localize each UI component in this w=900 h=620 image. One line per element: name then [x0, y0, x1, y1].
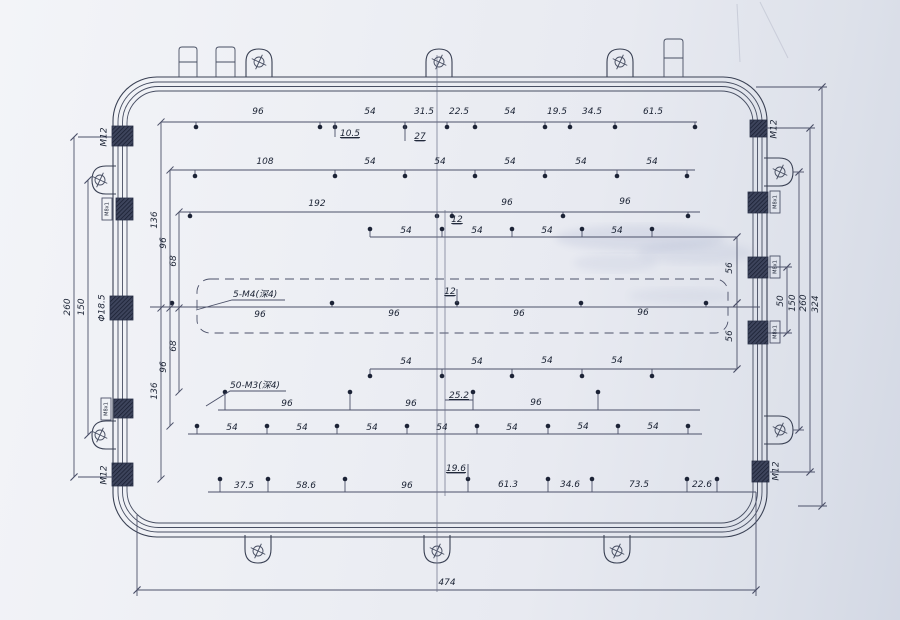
hole-dot	[686, 424, 691, 429]
dim-label: 50	[776, 295, 786, 307]
dim-label: 54	[541, 226, 553, 236]
dim-label: 96	[401, 481, 413, 491]
dim-label: 54	[541, 356, 553, 366]
hole-dot	[616, 424, 621, 429]
dim-label: 56	[725, 262, 735, 274]
dim-label: 96	[405, 399, 417, 409]
hole-dot	[403, 174, 408, 179]
dim-label: 12	[451, 215, 463, 225]
dim-label: 34.6	[560, 480, 580, 490]
dim-label: 54	[296, 423, 308, 433]
hole-dot	[685, 477, 690, 482]
cable-gland-hatch	[750, 120, 767, 137]
hole-dot	[615, 174, 620, 179]
hole-dot	[473, 125, 478, 130]
hole-dot	[579, 301, 584, 306]
dim-label: 136	[150, 382, 160, 399]
dim-label: 56	[725, 330, 735, 342]
gland-label: M8x1	[773, 325, 779, 339]
hole-dot	[445, 125, 450, 130]
hole-dot	[613, 125, 618, 130]
gland-label: M12	[770, 119, 780, 138]
dim-label: 68	[169, 340, 179, 352]
cable-gland-hatch	[748, 257, 768, 278]
dim-label: 12	[444, 287, 456, 297]
hole-dot	[471, 390, 476, 395]
dim-label: 96	[530, 398, 542, 408]
dim-label: 474	[438, 578, 455, 588]
dim-label: 54	[364, 107, 376, 117]
dim-label: 96	[619, 197, 631, 207]
hidden-recess-outline	[197, 279, 728, 333]
dim-label: 54	[575, 157, 587, 167]
hole-dot	[333, 174, 338, 179]
hole-dot	[510, 374, 515, 379]
label-layer: M12M8x1Φ18.5M8x1M12M12M8x1M8x1M8x1M12965…	[63, 107, 821, 588]
hole-dot	[440, 374, 445, 379]
cable-gland-hatch	[110, 296, 133, 320]
dim-label: 96	[159, 361, 169, 373]
gland-label: M8x1	[773, 260, 779, 274]
dim-label: 31.5	[414, 107, 434, 117]
hole-dot	[368, 227, 373, 232]
cable-gland-hatch	[112, 463, 133, 486]
dim-label: 19.6	[446, 464, 466, 474]
hole-dot	[704, 301, 709, 306]
gland-label: M12	[772, 461, 782, 480]
dim-label: 324	[811, 295, 821, 312]
dim-label: 54	[471, 357, 483, 367]
dim-label: 136	[150, 211, 160, 228]
dim-label: 260	[63, 298, 73, 315]
dim-label: 54	[400, 357, 412, 367]
mounting-lug	[92, 421, 116, 449]
dim-label: 54	[611, 226, 623, 236]
mounting-lug	[764, 158, 793, 186]
dim-label: 54	[504, 107, 516, 117]
cable-gland-hatch	[748, 192, 768, 213]
dim-label: 58.6	[296, 481, 316, 491]
hole-dot	[348, 390, 353, 395]
dim-label: 54	[504, 157, 516, 167]
cable-gland-hatch	[748, 321, 768, 344]
mounting-lug	[92, 166, 116, 194]
hole-dot	[475, 424, 480, 429]
dim-label: 25.2	[449, 391, 469, 401]
hole-dot	[188, 214, 193, 219]
hole-dot	[561, 214, 566, 219]
dim-label: 54	[364, 157, 376, 167]
gland-label: Φ18.5	[98, 294, 108, 321]
hole-dot	[568, 125, 573, 130]
dim-label: 37.5	[234, 481, 254, 491]
hole-dot	[686, 214, 691, 219]
hole-dot	[650, 374, 655, 379]
hole-dot	[193, 174, 198, 179]
gland-label: M8x1	[104, 402, 110, 416]
hole-dot	[265, 424, 270, 429]
dim-label: 19.5	[547, 107, 567, 117]
dim-label: 73.5	[629, 480, 649, 490]
dim-label: 61.5	[643, 107, 663, 117]
hole-dot	[590, 477, 595, 482]
dim-label: 10.5	[340, 129, 360, 139]
dim-label: 22.5	[449, 107, 469, 117]
hole-dot	[335, 424, 340, 429]
dim-label: 27	[414, 132, 426, 142]
hole-dot	[685, 174, 690, 179]
ghost-smudge	[628, 288, 732, 304]
hole-dot	[218, 477, 223, 482]
callout-label: 50-M3(深4)	[230, 380, 280, 391]
hole-dot	[266, 477, 271, 482]
cable-gland-hatch	[112, 126, 133, 146]
hole-dot	[650, 227, 655, 232]
hole-dot	[194, 125, 199, 130]
hole-dot	[546, 477, 551, 482]
dim-label: 108	[256, 157, 273, 167]
dim-label: 54	[506, 423, 518, 433]
hole-dot	[543, 125, 548, 130]
callout-label: 5-M4(深4)	[233, 289, 277, 300]
cable-gland-hatch	[114, 399, 133, 418]
callout-leader	[196, 300, 285, 310]
dim-label: 260	[799, 294, 809, 311]
dim-label: 150	[788, 294, 798, 311]
hole-dot	[330, 301, 335, 306]
hole-dot	[405, 424, 410, 429]
dimension-layer	[71, 55, 828, 596]
cable-gland-hatch	[116, 198, 133, 220]
dim-label: 34.5	[582, 107, 602, 117]
dim-label: 54	[471, 226, 483, 236]
drawing-sheet: M12M8x1Φ18.5M8x1M12M12M8x1M8x1M8x1M12965…	[0, 0, 900, 620]
paper-crease	[760, 2, 788, 58]
gland-label: M8x1	[105, 202, 111, 216]
hole-dot	[715, 477, 720, 482]
dim-label: 96	[159, 237, 169, 249]
hole-dot	[440, 227, 445, 232]
dim-label: 150	[77, 298, 87, 315]
gland-label: M8x1	[773, 195, 779, 209]
dim-label: 54	[400, 226, 412, 236]
dim-label: 54	[436, 423, 448, 433]
hole-dot	[596, 390, 601, 395]
dim-label: 96	[388, 309, 400, 319]
hole-dot	[368, 374, 373, 379]
hole-dot	[473, 174, 478, 179]
callout-leader	[206, 391, 286, 406]
dim-label: 54	[366, 423, 378, 433]
hole-dot	[580, 227, 585, 232]
hole-dot	[343, 477, 348, 482]
dim-label: 96	[281, 399, 293, 409]
dim-label: 96	[252, 107, 264, 117]
mounting-lug	[245, 535, 271, 563]
gland-label: M12	[100, 127, 110, 146]
cable-gland-hatch	[752, 461, 769, 482]
dim-label: 192	[308, 199, 325, 209]
dim-label: 96	[501, 198, 513, 208]
paper-crease	[737, 4, 740, 62]
dim-label: 54	[434, 157, 446, 167]
hole-dot	[543, 174, 548, 179]
ghost-smudge	[573, 254, 657, 272]
mounting-lug	[604, 535, 630, 563]
dim-label: 68	[169, 255, 179, 267]
hole-dot	[195, 424, 200, 429]
cad-drawing: M12M8x1Φ18.5M8x1M12M12M8x1M8x1M8x1M12965…	[0, 0, 900, 620]
dim-label: 54	[577, 422, 589, 432]
hole-dot	[318, 125, 323, 130]
dim-label: 96	[637, 308, 649, 318]
hole-dot	[546, 424, 551, 429]
hole-dot	[510, 227, 515, 232]
dim-label: 54	[646, 157, 658, 167]
mounting-lug	[764, 416, 793, 444]
hole-dot	[580, 374, 585, 379]
dim-label: 22.6	[692, 480, 712, 490]
gland-label: M12	[100, 465, 110, 484]
dim-label: 96	[254, 310, 266, 320]
dim-label: 54	[226, 423, 238, 433]
dim-label: 54	[611, 356, 623, 366]
hole-dot	[693, 125, 698, 130]
dim-label: 61.3	[498, 480, 518, 490]
dim-label: 54	[647, 422, 659, 432]
dim-label: 96	[513, 309, 525, 319]
